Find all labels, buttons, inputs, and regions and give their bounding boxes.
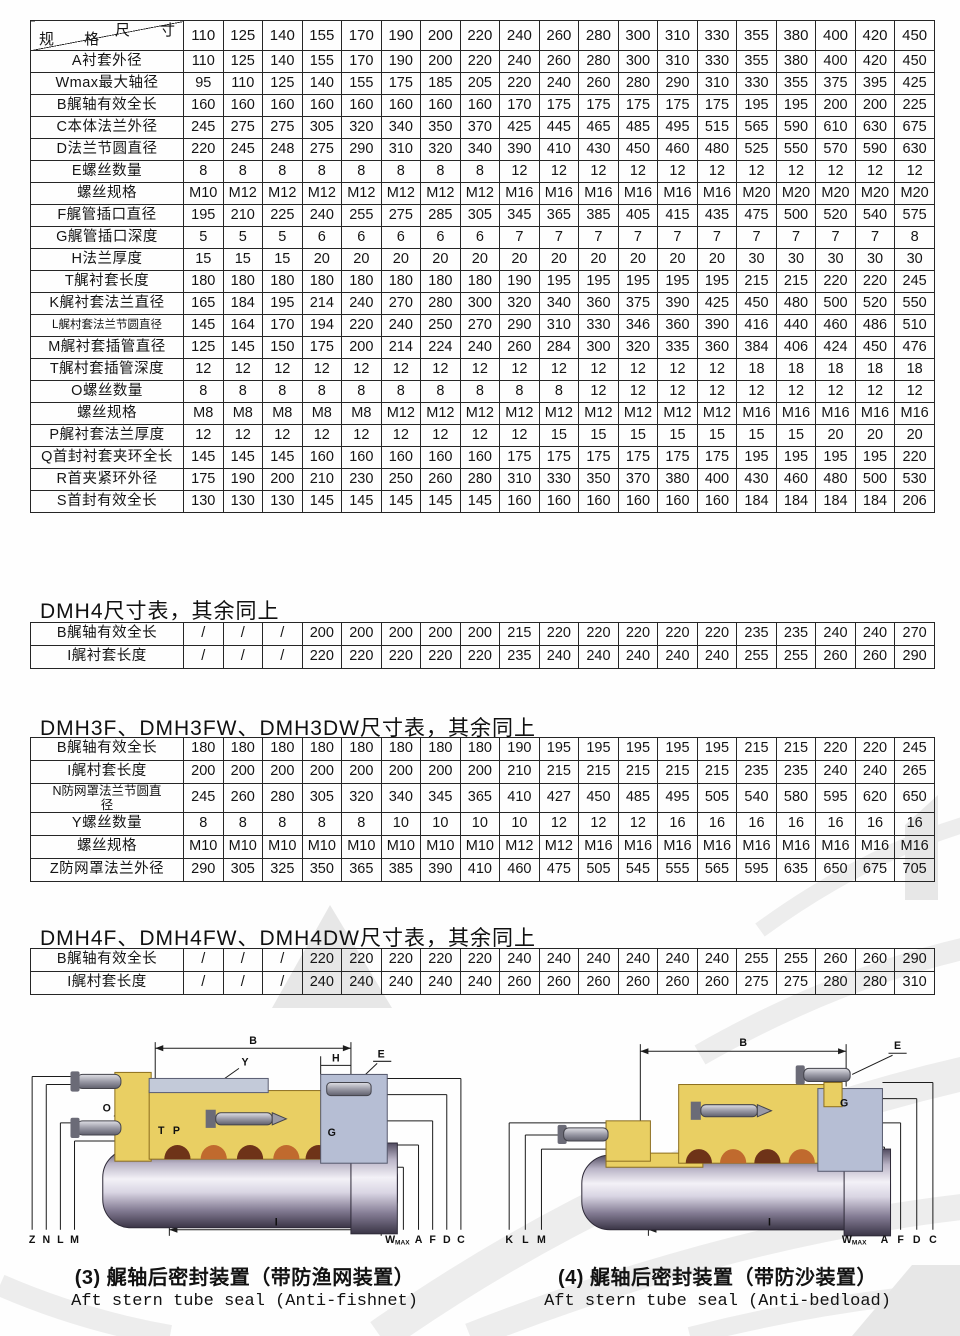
value-cell: 240 <box>539 73 579 95</box>
value-cell: 360 <box>579 293 619 315</box>
value-cell: 12 <box>697 359 737 381</box>
table-row: 螺丝规格M10M12M12M12M12M12M12M12M16M16M16M16… <box>31 183 935 205</box>
value-cell: 7 <box>579 227 619 249</box>
value-cell: 15 <box>658 425 698 447</box>
value-cell: M12 <box>421 183 461 205</box>
value-cell: 12 <box>421 425 461 447</box>
value-cell: 180 <box>184 271 224 293</box>
value-cell: M16 <box>737 403 777 425</box>
value-cell: 200 <box>421 51 461 73</box>
value-cell: 180 <box>342 271 382 293</box>
value-cell: 505 <box>697 784 737 813</box>
value-cell: 240 <box>302 972 342 995</box>
table-row: M艉衬套插管直径12514515017520021422424026028430… <box>31 337 935 359</box>
value-cell: / <box>263 646 303 669</box>
label-H: H <box>332 1052 340 1064</box>
value-cell: 390 <box>697 315 737 337</box>
value-cell: 240 <box>381 315 421 337</box>
value-cell: 145 <box>302 491 342 513</box>
value-cell: 20 <box>816 425 856 447</box>
table-row: K艉衬套法兰直径16518419521424027028030032034036… <box>31 293 935 315</box>
value-cell: 260 <box>500 972 540 995</box>
value-cell: 415 <box>658 205 698 227</box>
corner-label-size: 尺 寸 <box>115 23 175 39</box>
value-cell: 12 <box>223 359 263 381</box>
value-cell: 220 <box>539 623 579 646</box>
value-cell: 195 <box>658 738 698 761</box>
value-cell: M16 <box>658 183 698 205</box>
value-cell: 635 <box>776 859 816 882</box>
value-cell: M10 <box>342 836 382 859</box>
value-cell: 320 <box>500 293 540 315</box>
value-cell: M10 <box>184 836 224 859</box>
value-cell: 160 <box>579 491 619 513</box>
value-cell: 18 <box>737 359 777 381</box>
value-cell: 12 <box>776 161 816 183</box>
value-cell: 160 <box>302 447 342 469</box>
value-cell: 130 <box>263 491 303 513</box>
value-cell: 200 <box>263 761 303 784</box>
value-cell: M16 <box>816 403 856 425</box>
corner-header-cell: 尺 寸规 格 <box>31 21 184 51</box>
value-cell: 184 <box>855 491 895 513</box>
value-cell: 180 <box>381 738 421 761</box>
value-cell: 145 <box>263 447 303 469</box>
value-cell: M16 <box>776 836 816 859</box>
value-cell: 155 <box>342 73 382 95</box>
value-cell: 145 <box>381 491 421 513</box>
value-cell: 220 <box>381 949 421 972</box>
label-N: N <box>42 1234 50 1246</box>
table-row: 螺丝规格M10M10M10M10M10M10M10M10M12M12M16M16… <box>31 836 935 859</box>
value-cell: 5 <box>184 227 224 249</box>
value-cell: 190 <box>500 738 540 761</box>
size-column-header: 240 <box>500 21 540 51</box>
value-cell: 15 <box>579 425 619 447</box>
value-cell: 12 <box>697 381 737 403</box>
value-cell: 345 <box>421 784 461 813</box>
value-cell: 310 <box>697 73 737 95</box>
value-cell: / <box>184 972 224 995</box>
value-cell: 235 <box>737 761 777 784</box>
value-cell: 190 <box>381 51 421 73</box>
value-cell: 206 <box>895 491 935 513</box>
diagram-caption: (4) 艉轴后密封装置（带防沙装置） Aft stern tube seal (… <box>489 1261 946 1311</box>
value-cell: 340 <box>381 117 421 139</box>
value-cell: M16 <box>500 183 540 205</box>
value-cell: 215 <box>776 738 816 761</box>
value-cell: 16 <box>776 813 816 836</box>
value-cell: 255 <box>737 646 777 669</box>
value-cell: M16 <box>737 836 777 859</box>
value-cell: M12 <box>618 403 658 425</box>
value-cell: M8 <box>223 403 263 425</box>
value-cell: 290 <box>500 315 540 337</box>
value-cell: 440 <box>776 315 816 337</box>
value-cell: 425 <box>500 117 540 139</box>
value-cell: 5 <box>263 227 303 249</box>
value-cell: 255 <box>737 949 777 972</box>
value-cell: 305 <box>223 859 263 882</box>
value-cell: 184 <box>776 491 816 513</box>
row-label: R首夹紧环外径 <box>31 469 184 491</box>
value-cell: 630 <box>855 117 895 139</box>
value-cell: 305 <box>302 117 342 139</box>
value-cell: 8 <box>263 813 303 836</box>
value-cell: 195 <box>539 738 579 761</box>
value-cell: 395 <box>855 73 895 95</box>
dmh4-dimension-table: B艉轴有效全长///200200200200200215220220220220… <box>30 622 935 669</box>
table-row: O螺丝数量8888888888121212121212121212 <box>31 381 935 403</box>
value-cell: 390 <box>421 859 461 882</box>
value-cell: 260 <box>697 972 737 995</box>
value-cell: 175 <box>658 447 698 469</box>
bedload-guard-collar <box>606 1121 650 1161</box>
label-C: C <box>457 1234 465 1246</box>
value-cell: 360 <box>658 315 698 337</box>
value-cell: 240 <box>618 646 658 669</box>
row-label: E螺丝数量 <box>31 161 184 183</box>
value-cell: 485 <box>618 784 658 813</box>
value-cell: 195 <box>697 738 737 761</box>
value-cell: 215 <box>737 271 777 293</box>
value-cell: 8 <box>184 161 224 183</box>
diagram-caption: (3) 艉轴后密封装置（带防渔网装置） Aft stern tube seal … <box>16 1261 473 1311</box>
dmh4f-dimension-table: B艉轴有效全长///220220220220220240240240240240… <box>30 948 935 995</box>
value-cell: 215 <box>618 761 658 784</box>
value-cell: 545 <box>618 859 658 882</box>
value-cell: M16 <box>895 836 935 859</box>
value-cell: M12 <box>539 403 579 425</box>
value-cell: 400 <box>816 51 856 73</box>
value-cell: 12 <box>539 813 579 836</box>
value-cell: 340 <box>381 784 421 813</box>
value-cell: 16 <box>737 813 777 836</box>
row-label: Y螺丝数量 <box>31 813 184 836</box>
value-cell: 248 <box>263 139 303 161</box>
row-label: A衬套外径 <box>31 51 184 73</box>
table-row: H法兰厚度15151520202020202020202020203030303… <box>31 249 935 271</box>
value-cell: 260 <box>223 784 263 813</box>
value-cell: 275 <box>223 117 263 139</box>
value-cell: 175 <box>302 337 342 359</box>
table-row: P艉衬套法兰厚度12121212121212121215151515151515… <box>31 425 935 447</box>
value-cell: M16 <box>618 836 658 859</box>
value-cell: 110 <box>184 51 224 73</box>
value-cell: 160 <box>618 491 658 513</box>
value-cell: 20 <box>697 249 737 271</box>
value-cell: 220 <box>342 646 382 669</box>
row-label: L艉村套法兰节圆直径 <box>31 315 184 337</box>
value-cell: 160 <box>421 95 461 117</box>
value-cell: 180 <box>223 738 263 761</box>
value-cell: / <box>263 972 303 995</box>
value-cell: 220 <box>500 73 540 95</box>
casing-bolt <box>804 1068 850 1081</box>
value-cell: 160 <box>460 95 500 117</box>
label-D: D <box>443 1234 451 1246</box>
value-cell: 12 <box>658 161 698 183</box>
value-cell: 420 <box>855 51 895 73</box>
bolt-head <box>206 1110 216 1128</box>
label-E: E <box>894 1040 901 1052</box>
value-cell: 15 <box>223 249 263 271</box>
value-cell: 30 <box>895 249 935 271</box>
seal-cross-section-anti-bedload: B E G K L M I WMAX A F D C <box>489 1028 946 1252</box>
value-cell: 175 <box>381 73 421 95</box>
value-cell: 410 <box>539 139 579 161</box>
value-cell: 495 <box>658 117 698 139</box>
value-cell: M12 <box>500 836 540 859</box>
value-cell: 184 <box>816 491 856 513</box>
value-cell: M12 <box>658 403 698 425</box>
value-cell: 175 <box>539 447 579 469</box>
value-cell: 20 <box>342 249 382 271</box>
size-column-header: 330 <box>697 21 737 51</box>
table-row: Y螺丝数量888881010101012121216161616161616 <box>31 813 935 836</box>
value-cell: 8 <box>184 381 224 403</box>
value-cell: 520 <box>816 205 856 227</box>
value-cell: M16 <box>579 836 619 859</box>
value-cell: 320 <box>342 117 382 139</box>
label-G: G <box>840 1098 848 1110</box>
table-row: G艉管插口深度5556666677777777778 <box>31 227 935 249</box>
value-cell: 195 <box>579 738 619 761</box>
value-cell: M12 <box>381 183 421 205</box>
value-cell: 175 <box>618 95 658 117</box>
value-cell: 220 <box>658 623 698 646</box>
table-row: R首夹紧环外径175190200210230250260280310330350… <box>31 469 935 491</box>
value-cell: 184 <box>223 293 263 315</box>
value-cell: 280 <box>579 51 619 73</box>
value-cell: 280 <box>816 972 856 995</box>
value-cell: 300 <box>618 51 658 73</box>
value-cell: 200 <box>381 623 421 646</box>
value-cell: 20 <box>302 249 342 271</box>
label-D: D <box>913 1234 921 1246</box>
label-F: F <box>429 1234 436 1246</box>
row-label: N防网罩法兰节圆直径 <box>31 784 184 813</box>
value-cell: 170 <box>263 315 303 337</box>
value-cell: 235 <box>737 623 777 646</box>
value-cell: M16 <box>697 836 737 859</box>
value-cell: 195 <box>855 447 895 469</box>
table-row: L艉村套法兰节圆直径145164170194220240250270290310… <box>31 315 935 337</box>
row-label: Q首封衬套夹环全长 <box>31 447 184 469</box>
value-cell: 195 <box>658 271 698 293</box>
value-cell: 225 <box>895 95 935 117</box>
value-cell: 8 <box>895 227 935 249</box>
value-cell: 175 <box>697 447 737 469</box>
value-cell: 260 <box>816 949 856 972</box>
value-cell: / <box>184 646 224 669</box>
size-column-header: 140 <box>263 21 303 51</box>
value-cell: 214 <box>381 337 421 359</box>
value-cell: 240 <box>342 293 382 315</box>
bolt-head <box>70 1118 79 1138</box>
value-cell: 12 <box>500 359 540 381</box>
diagram-caption-en: Aft stern tube seal (Anti-fishnet) <box>16 1292 473 1311</box>
value-cell: 310 <box>895 972 935 995</box>
value-cell: 255 <box>342 205 382 227</box>
value-cell: 240 <box>460 337 500 359</box>
value-cell: 12 <box>618 161 658 183</box>
table-row: S首封有效全长130130130145145145145145160160160… <box>31 491 935 513</box>
value-cell: M20 <box>816 183 856 205</box>
value-cell: 12 <box>539 359 579 381</box>
value-cell: 570 <box>816 139 856 161</box>
value-cell: 435 <box>697 205 737 227</box>
value-cell: 465 <box>579 117 619 139</box>
value-cell: 6 <box>381 227 421 249</box>
value-cell: 16 <box>658 813 698 836</box>
value-cell: 500 <box>776 205 816 227</box>
value-cell: 15 <box>737 425 777 447</box>
value-cell: 245 <box>895 738 935 761</box>
value-cell: 12 <box>263 425 303 447</box>
value-cell: 485 <box>618 117 658 139</box>
value-cell: 195 <box>776 95 816 117</box>
value-cell: 235 <box>776 761 816 784</box>
value-cell: 260 <box>658 972 698 995</box>
label-F: F <box>897 1234 904 1246</box>
label-M: M <box>537 1234 546 1246</box>
value-cell: 8 <box>342 161 382 183</box>
value-cell: 12 <box>184 425 224 447</box>
table-row: Wmax最大轴径95110125140155175185205220240260… <box>31 73 935 95</box>
value-cell: M12 <box>381 403 421 425</box>
value-cell: 8 <box>460 161 500 183</box>
value-cell: 290 <box>895 949 935 972</box>
value-cell: 255 <box>776 949 816 972</box>
value-cell: 125 <box>184 337 224 359</box>
row-label: B艉轴有效全长 <box>31 623 184 646</box>
value-cell: 145 <box>184 447 224 469</box>
value-cell: 284 <box>539 337 579 359</box>
value-cell: 365 <box>460 784 500 813</box>
value-cell: 140 <box>263 51 303 73</box>
value-cell: 480 <box>776 293 816 315</box>
value-cell: 480 <box>816 469 856 491</box>
value-cell: 595 <box>737 859 777 882</box>
value-cell: 145 <box>184 315 224 337</box>
value-cell: 12 <box>342 425 382 447</box>
value-cell: M10 <box>381 836 421 859</box>
value-cell: 7 <box>658 227 698 249</box>
value-cell: M12 <box>500 403 540 425</box>
label-I: I <box>768 1217 771 1229</box>
value-cell: 6 <box>342 227 382 249</box>
value-cell: 500 <box>855 469 895 491</box>
value-cell: M16 <box>895 403 935 425</box>
value-cell: 8 <box>184 813 224 836</box>
row-label: F艉管插口直径 <box>31 205 184 227</box>
value-cell: 190 <box>500 271 540 293</box>
value-cell: 260 <box>855 646 895 669</box>
value-cell: 20 <box>539 249 579 271</box>
value-cell: 15 <box>263 249 303 271</box>
value-cell: 175 <box>579 95 619 117</box>
value-cell: 16 <box>895 813 935 836</box>
value-cell: 180 <box>460 738 500 761</box>
size-column-header: 110 <box>184 21 224 51</box>
table-row: Z防网罩法兰外径29030532535036538539041046047550… <box>31 859 935 882</box>
value-cell: 445 <box>539 117 579 139</box>
value-cell: M12 <box>223 183 263 205</box>
value-cell: 220 <box>460 646 500 669</box>
table-row: C本体法兰外径245275275305320340350370425445465… <box>31 117 935 139</box>
value-cell: 6 <box>421 227 461 249</box>
table-row: A衬套外径11012514015517019020022024026028030… <box>31 51 935 73</box>
value-cell: 180 <box>184 738 224 761</box>
value-cell: 12 <box>855 381 895 403</box>
value-cell: 565 <box>737 117 777 139</box>
value-cell: 430 <box>579 139 619 161</box>
value-cell: 6 <box>460 227 500 249</box>
value-cell: 175 <box>697 95 737 117</box>
size-column-header: 200 <box>421 21 461 51</box>
value-cell: 260 <box>539 51 579 73</box>
size-column-header: 260 <box>539 21 579 51</box>
value-cell: 160 <box>460 447 500 469</box>
value-cell: 280 <box>421 293 461 315</box>
value-cell: 16 <box>697 813 737 836</box>
value-cell: 580 <box>776 784 816 813</box>
value-cell: M20 <box>855 183 895 205</box>
value-cell: 540 <box>737 784 777 813</box>
value-cell: 180 <box>460 271 500 293</box>
value-cell: 125 <box>223 51 263 73</box>
value-cell: M10 <box>184 183 224 205</box>
row-label: D法兰节圆直径 <box>31 139 184 161</box>
label-B: B <box>249 1035 257 1047</box>
value-cell: 7 <box>618 227 658 249</box>
value-cell: 450 <box>618 139 658 161</box>
value-cell: 160 <box>381 95 421 117</box>
value-cell: 525 <box>737 139 777 161</box>
value-cell: 476 <box>895 337 935 359</box>
value-cell: 180 <box>302 271 342 293</box>
value-cell: 10 <box>421 813 461 836</box>
value-cell: 215 <box>776 271 816 293</box>
label-A: A <box>881 1234 889 1246</box>
value-cell: 20 <box>579 249 619 271</box>
value-cell: 550 <box>776 139 816 161</box>
value-cell: 390 <box>658 293 698 315</box>
value-cell: 160 <box>184 95 224 117</box>
value-cell: 175 <box>618 447 658 469</box>
value-cell: 220 <box>460 949 500 972</box>
label-A: A <box>415 1234 423 1246</box>
value-cell: 20 <box>855 425 895 447</box>
value-cell: 610 <box>816 117 856 139</box>
value-cell: 240 <box>579 646 619 669</box>
value-cell: 575 <box>895 205 935 227</box>
value-cell: 705 <box>895 859 935 882</box>
value-cell: 280 <box>460 469 500 491</box>
value-cell: 346 <box>618 315 658 337</box>
value-cell: M8 <box>184 403 224 425</box>
datasheet-page: 尺 寸规 格1101251401551701902002202402602803… <box>0 0 960 1336</box>
value-cell: 210 <box>302 469 342 491</box>
label-T: T <box>158 1125 165 1137</box>
value-cell: M10 <box>223 836 263 859</box>
value-cell: 195 <box>263 293 303 315</box>
value-cell: 180 <box>381 271 421 293</box>
value-cell: M16 <box>579 183 619 205</box>
value-cell: M16 <box>816 836 856 859</box>
value-cell: 12 <box>342 359 382 381</box>
